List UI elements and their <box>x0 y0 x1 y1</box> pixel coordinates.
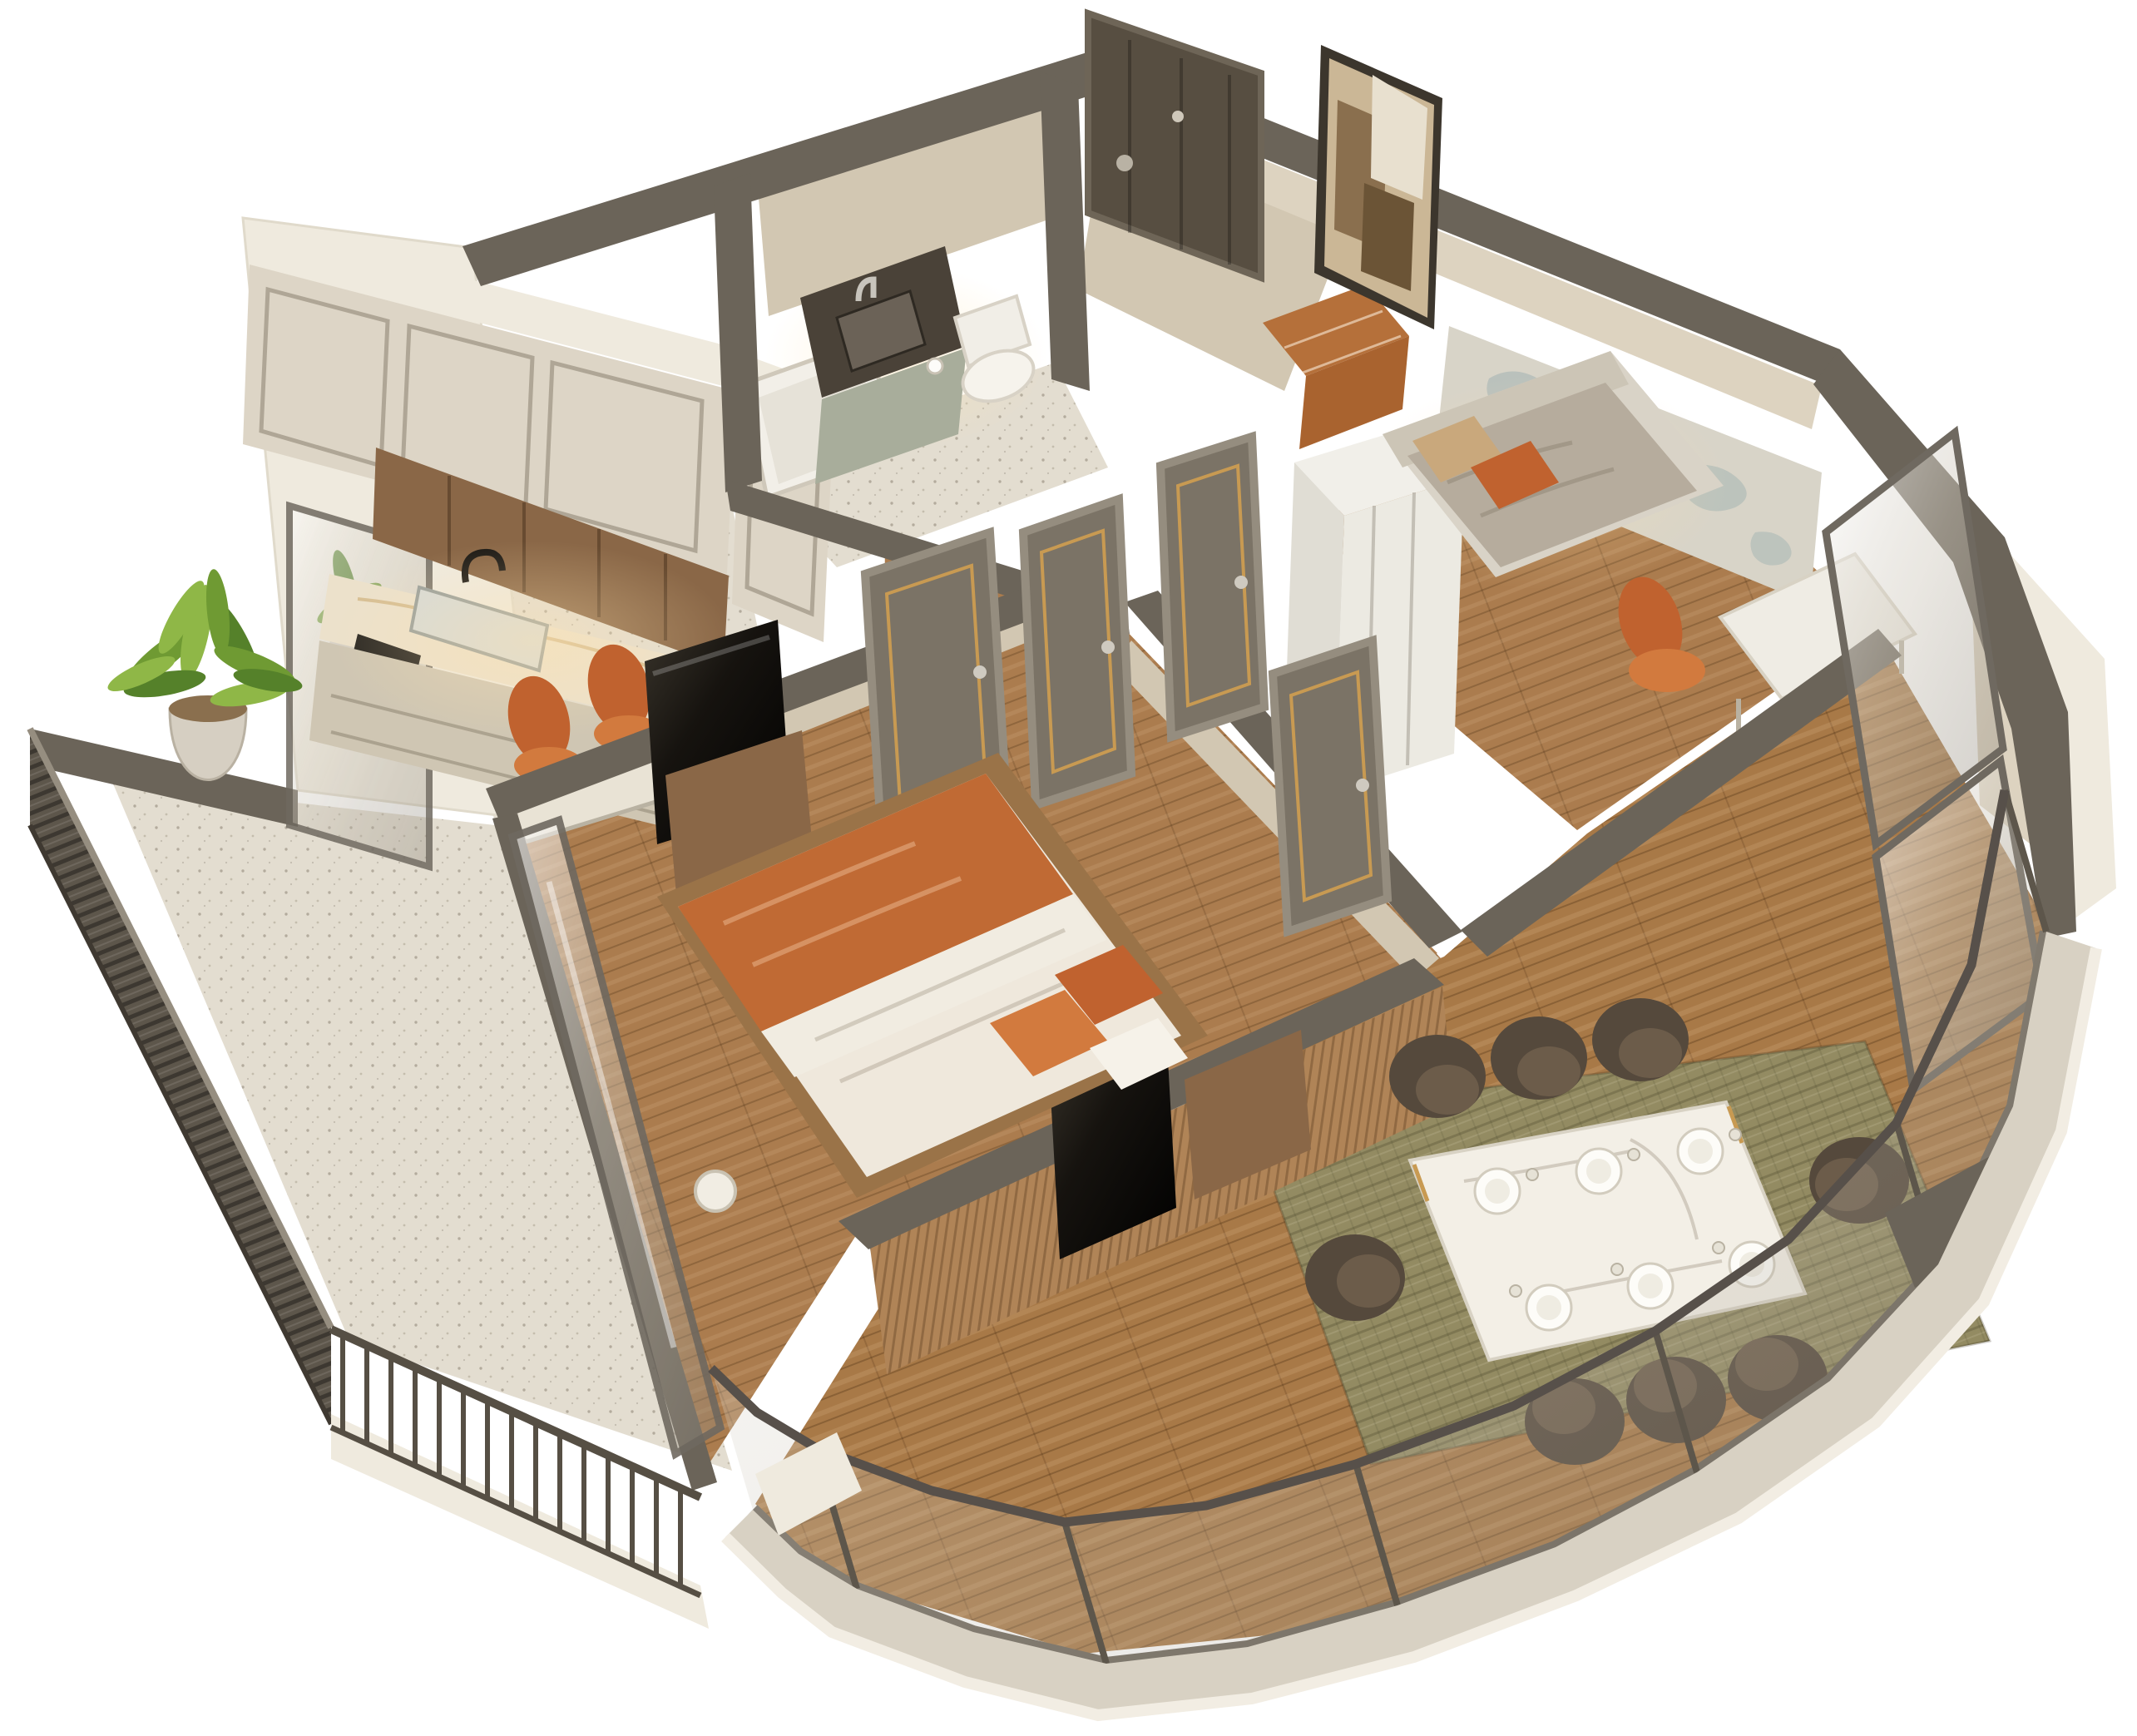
interior-door <box>1023 499 1131 805</box>
interior-door <box>1160 437 1264 737</box>
bathroom-east-wall-top <box>1040 72 1090 391</box>
door-knob-icon <box>1116 155 1133 171</box>
dining-chair <box>1305 1234 1405 1321</box>
interior-door <box>1273 640 1388 932</box>
door-handle-icon <box>1356 779 1369 792</box>
dining-chair <box>1491 1016 1587 1100</box>
dining-chair <box>1592 998 1689 1081</box>
apartment-3d-floorplan <box>0 0 2137 1736</box>
dining-chair <box>1389 1035 1486 1118</box>
floorplan-render <box>0 0 2137 1736</box>
wall-art <box>1314 45 1442 329</box>
toilet-paper-icon <box>928 359 942 373</box>
plant-leaves <box>104 568 304 711</box>
door-peephole-icon <box>1172 111 1184 122</box>
door-handle-icon <box>1234 576 1248 589</box>
bedside-table <box>695 1171 735 1211</box>
door-handle-icon <box>973 665 987 679</box>
potted-plant <box>104 568 304 780</box>
door-handle-icon <box>1101 640 1115 654</box>
